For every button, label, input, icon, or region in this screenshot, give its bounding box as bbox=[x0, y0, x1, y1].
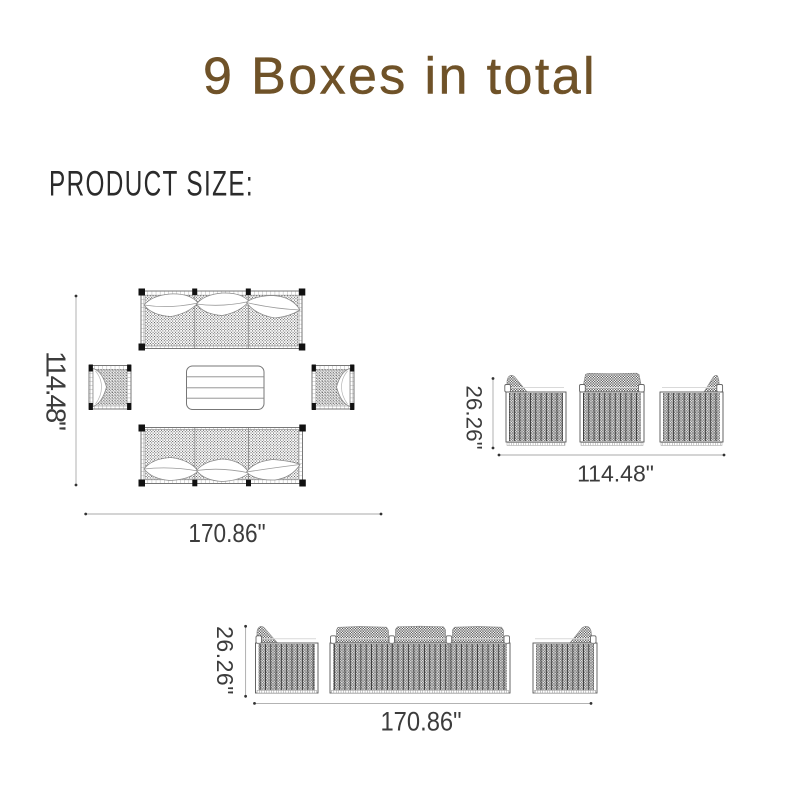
svg-text:26.26": 26.26" bbox=[462, 385, 487, 449]
svg-text:114.48": 114.48" bbox=[577, 460, 654, 486]
svg-text:PRODUCT SIZE:: PRODUCT SIZE: bbox=[49, 164, 254, 204]
svg-text:170.86": 170.86" bbox=[188, 520, 265, 549]
svg-text:9 Boxes in total: 9 Boxes in total bbox=[203, 48, 597, 106]
svg-text:26.26": 26.26" bbox=[212, 626, 238, 695]
svg-text:114.48": 114.48" bbox=[41, 351, 72, 430]
svg-text:170.86": 170.86" bbox=[380, 707, 461, 737]
